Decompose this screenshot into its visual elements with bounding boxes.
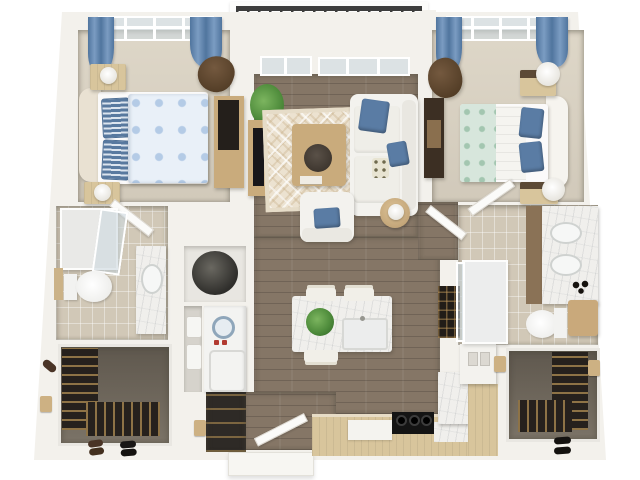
bed1-lamp-bottom-icon: [94, 184, 111, 201]
balcony-sliding-door: [260, 56, 312, 76]
armchair-back: [302, 228, 352, 242]
bed2-lamp-top-icon: [536, 62, 560, 86]
laundry-basket-2: [186, 344, 202, 370]
kitchen-cabinet-white: [460, 344, 496, 384]
closet2-shoes-2: [554, 446, 571, 454]
bed2-headboard: [546, 96, 568, 188]
closet1-clothes-bottom: [86, 402, 160, 436]
washer-door: [209, 350, 246, 392]
bathroom1-toilet-bowl: [76, 271, 112, 302]
bathroom2-stool: [568, 300, 598, 336]
bed2-pillow-top: [518, 107, 544, 139]
closet2-door-handle-left: [494, 356, 506, 372]
living-room-window: [318, 57, 410, 76]
bathroom1-wall-art: [54, 268, 63, 300]
stove-burner-3: [421, 415, 432, 426]
kitchen-counter-right: [434, 422, 470, 442]
closet1-door-handle: [40, 396, 52, 412]
sofa-pillow-1: [358, 98, 390, 134]
kitchen-cabinet-knob-1: [468, 352, 478, 366]
sofa-pillow-2: [386, 140, 410, 167]
closet2-shoes-1: [554, 436, 571, 444]
island-stool-2: [344, 288, 374, 301]
washer-knob-red-1: [214, 340, 219, 345]
kitchen-cabinet-column: [468, 384, 498, 456]
bed2-teal-blanket: [460, 104, 496, 182]
bedroom1-dresser-tv: [218, 100, 239, 150]
island-stool-3: [304, 350, 338, 362]
bedroom2-curtain-right: [536, 17, 568, 67]
side-table-lamp-icon: [388, 204, 404, 220]
water-heater: [192, 251, 238, 295]
stove-burner-1: [396, 415, 407, 426]
bed1-pillow-bottom: [101, 139, 131, 180]
bed1-pillow-top: [101, 97, 131, 138]
bed1-duvet: [128, 94, 208, 183]
bathroom2-toilet-tank: [554, 308, 567, 338]
bathroom1-sink: [141, 264, 163, 294]
bathroom2-sink-2: [550, 254, 582, 276]
kitchen-cabinet-knob-2: [480, 352, 490, 366]
armchair-pillow: [313, 207, 340, 229]
coffee-table-tray: [304, 144, 332, 172]
washer-dial-icon: [212, 316, 235, 339]
island-faucet-icon: [360, 316, 365, 321]
coat-closet-handle: [194, 420, 206, 436]
washer-knob-red-2: [222, 340, 227, 345]
entry-step: [228, 452, 314, 476]
bathroom2-shower: [462, 260, 508, 344]
bed2-lamp-bottom-icon: [542, 178, 565, 201]
bed1-lamp-top-icon: [100, 67, 117, 84]
coat-closet-floor: [206, 390, 246, 452]
bathroom2-shower-glass: [456, 262, 465, 342]
kitchen-sink-counter: [348, 420, 392, 440]
closet2-clothes-bottom: [518, 400, 572, 432]
sofa-pillow-patterned: [372, 158, 389, 178]
coffee-table-books: [300, 176, 322, 184]
bedroom2-desk-item: [427, 120, 441, 148]
island-sink: [342, 318, 388, 350]
bathroom2-accessories: [572, 280, 592, 294]
bathroom2-vanity-cabinet: [526, 206, 542, 304]
stove-burner-2: [409, 415, 420, 426]
bed2-pillow-bottom: [518, 141, 544, 173]
island-plant-icon: [306, 308, 334, 336]
island-stool-1: [306, 288, 336, 301]
laundry-basket-1: [186, 316, 202, 338]
bathroom2-sink-1: [550, 222, 582, 244]
closet2-door-handle-right: [588, 360, 600, 376]
floor-plan-image: [0, 0, 640, 480]
